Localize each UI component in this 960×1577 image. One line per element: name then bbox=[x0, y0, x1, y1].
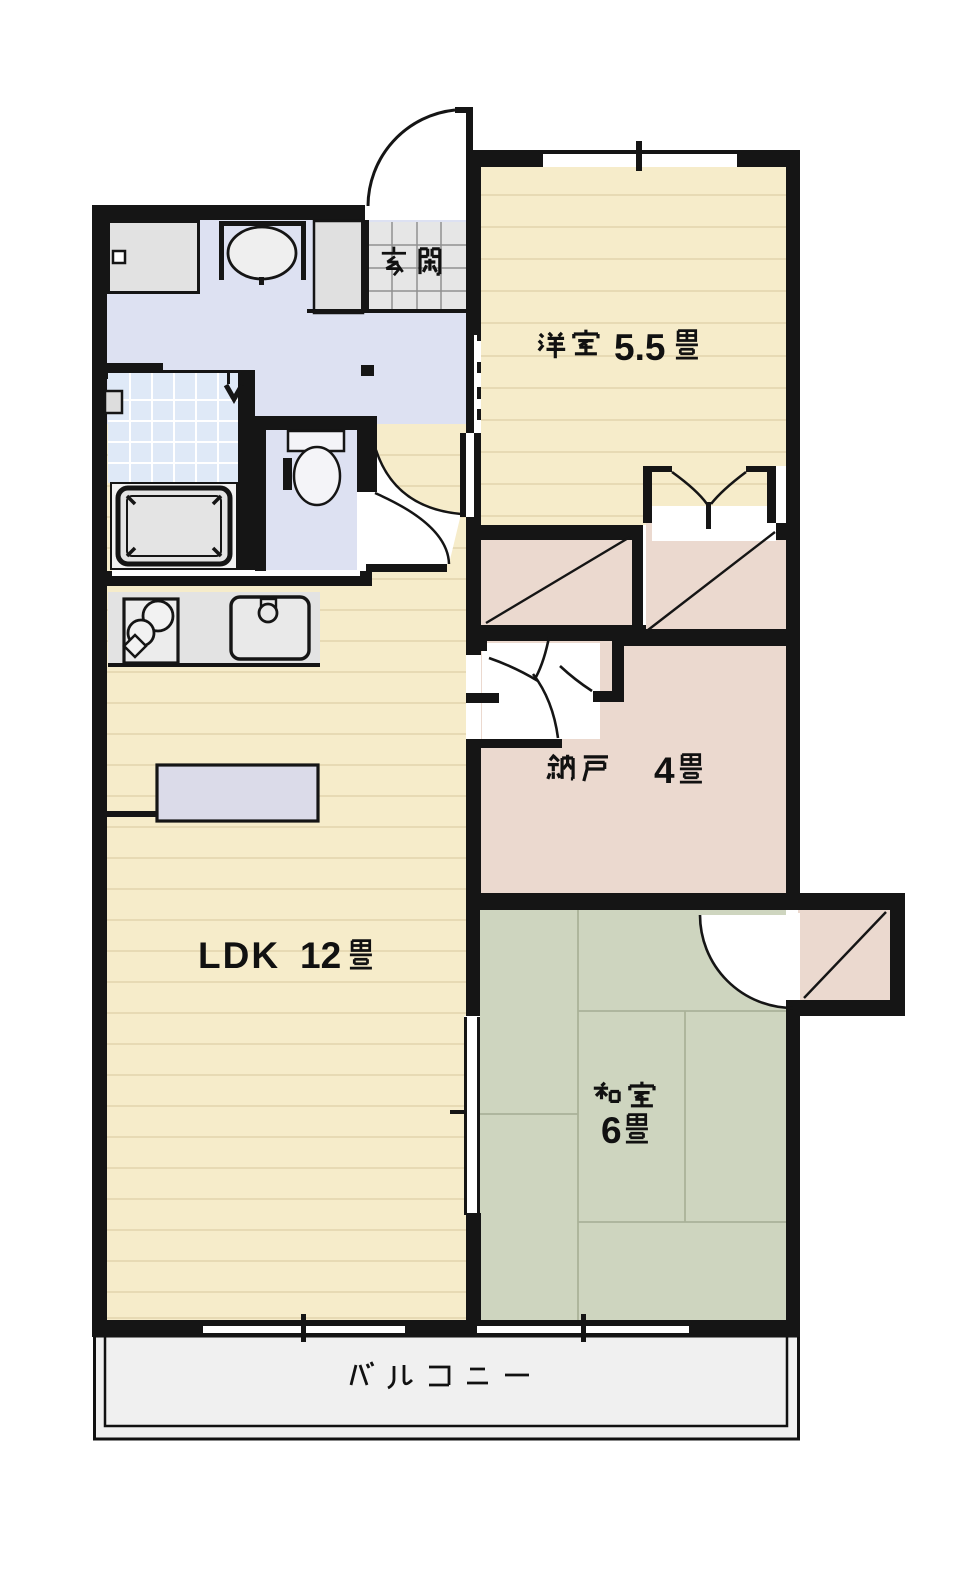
svg-text:6: 6 bbox=[601, 1110, 622, 1151]
svg-text:5.5: 5.5 bbox=[614, 327, 665, 368]
svg-text:12: 12 bbox=[300, 935, 341, 976]
svg-text:4: 4 bbox=[654, 750, 675, 791]
svg-text:LDK: LDK bbox=[198, 935, 280, 976]
